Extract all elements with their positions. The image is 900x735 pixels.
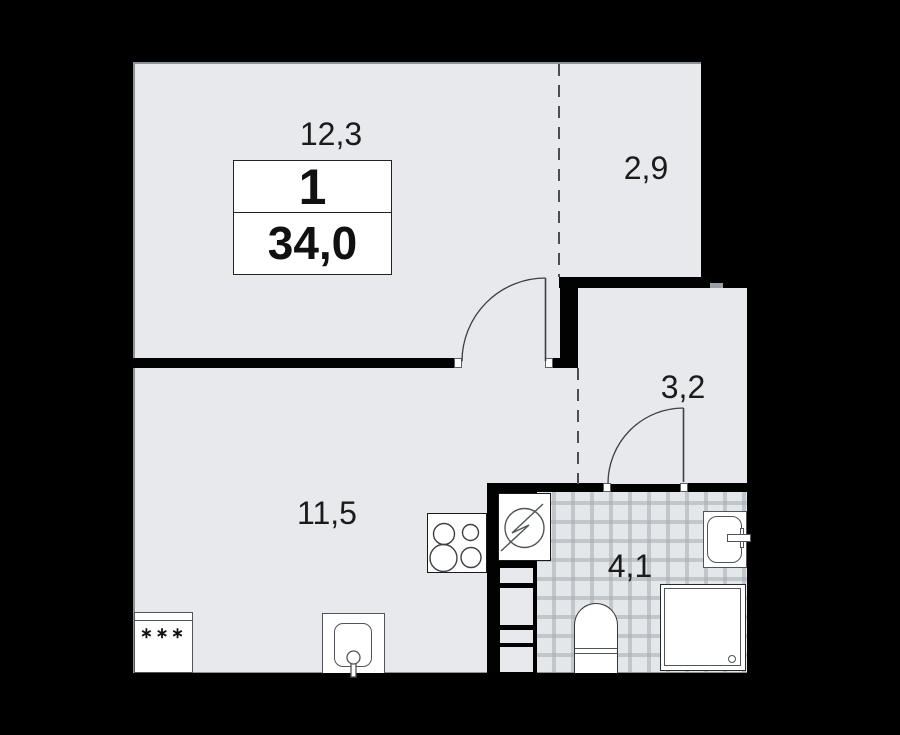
faucet-base	[347, 651, 360, 664]
floor-plan: ∗∗∗	[0, 0, 900, 735]
sink-faucet-icon	[347, 651, 360, 677]
stroke-overlay	[0, 0, 900, 735]
label-kitchen-area: 11,5	[267, 492, 387, 534]
unit-total-area: 34,0	[234, 213, 391, 274]
burner	[461, 548, 481, 568]
label-living-room-area: 12,3	[271, 113, 391, 155]
door-swing-arc-bathroom	[608, 408, 684, 484]
door-swing-arc-living	[462, 278, 546, 362]
unit-rooms-count: 1	[234, 161, 391, 213]
stove-burners-icon	[430, 524, 481, 572]
label-hallway-area: 3,2	[623, 366, 743, 408]
label-balcony-area: 2,9	[586, 147, 706, 189]
burner	[463, 525, 479, 541]
burner	[430, 545, 457, 572]
burner	[434, 524, 455, 545]
unit-info-box: 1 34,0	[233, 160, 392, 275]
water-heater-symbol-icon	[501, 504, 544, 551]
label-bathroom-area: 4,1	[570, 545, 690, 587]
